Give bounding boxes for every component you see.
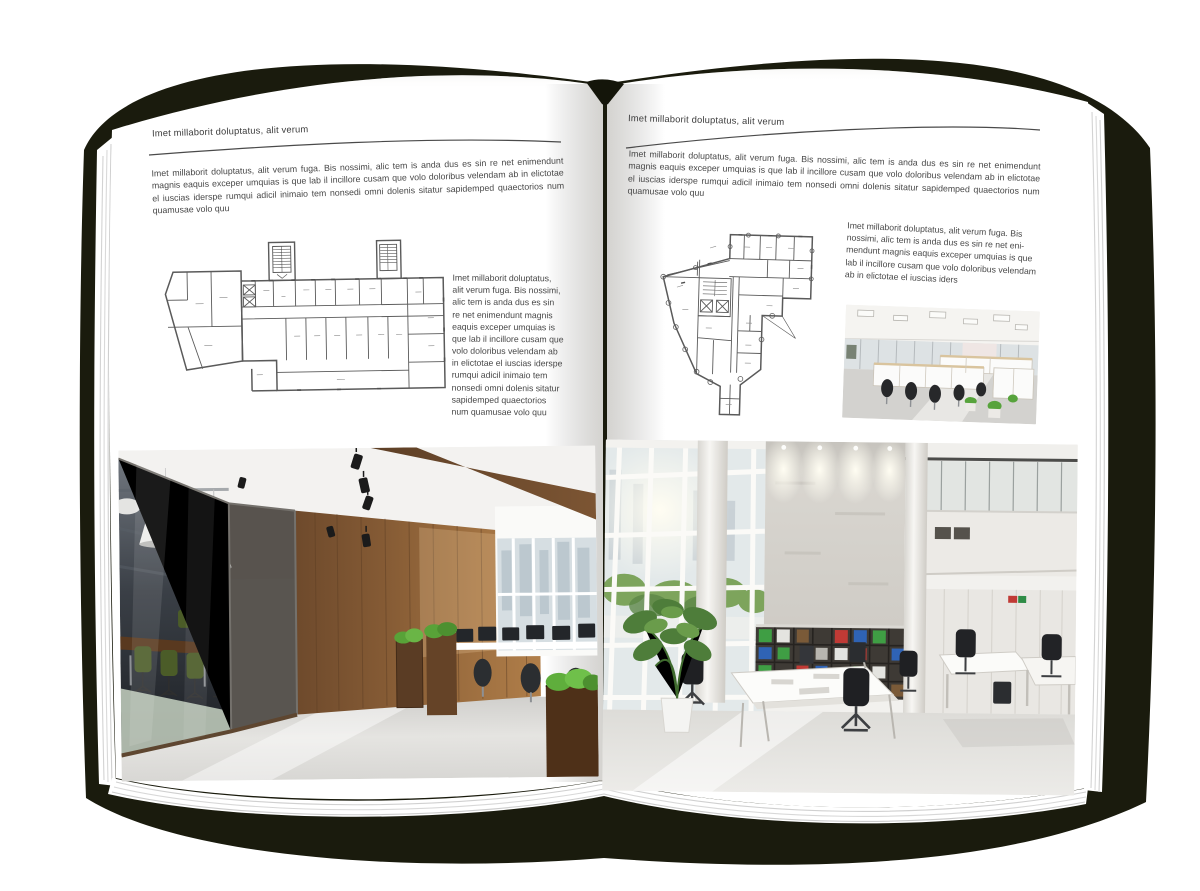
magazine-mockup-canvas: { "canvas": { "background": "#ffffff", "… <box>0 0 1200 891</box>
left-page-side-text: Imet millaborit doluptatus, alit verum f… <box>451 272 564 419</box>
photo-right-office <box>602 440 1078 796</box>
mezzanine <box>904 443 1077 577</box>
stair-tower-a <box>269 242 296 280</box>
floorplan-right <box>643 216 845 427</box>
concrete-wall <box>762 440 908 628</box>
round-column <box>903 443 928 723</box>
stair-tower-b <box>377 240 402 278</box>
plan2-rooms <box>659 233 812 417</box>
floorplan-left <box>155 237 450 416</box>
photo-left-office <box>118 446 598 782</box>
small-ceiling <box>845 305 1040 346</box>
main-wing-outline <box>165 268 445 393</box>
photo-small-office <box>842 305 1040 425</box>
right-page-side-text: Imet millaborit doluptatus, alit verum f… <box>845 219 1044 289</box>
rooms-and-corridor <box>167 268 445 393</box>
plan2-columns <box>658 231 815 388</box>
